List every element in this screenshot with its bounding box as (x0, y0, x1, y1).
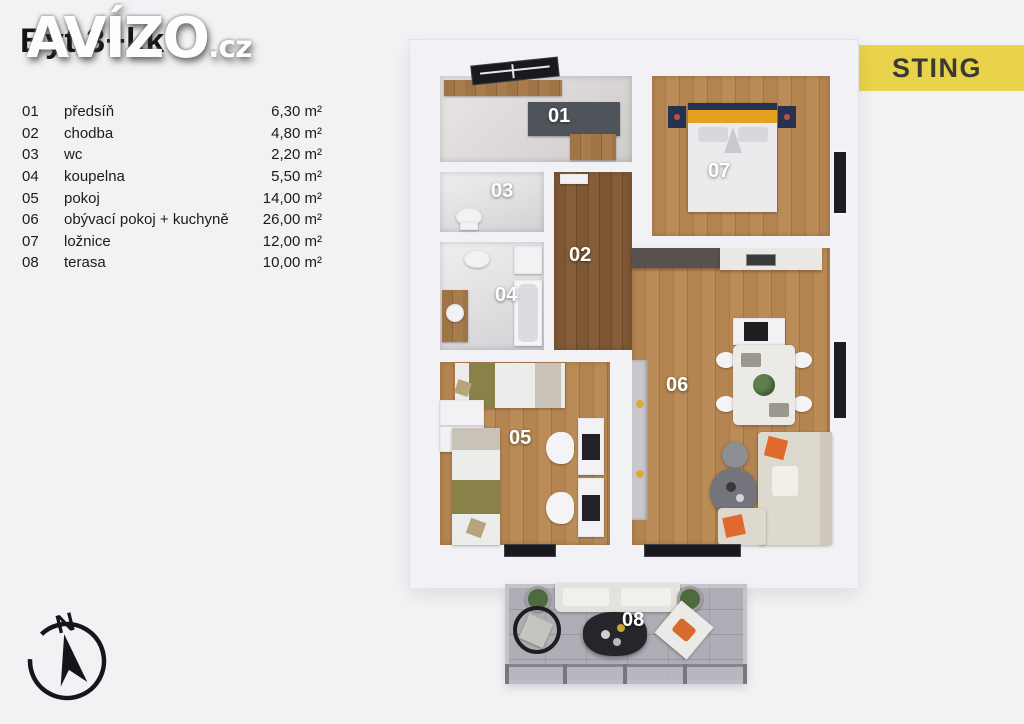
legend-room-name: předsíň (64, 103, 271, 120)
bathtub (514, 280, 542, 346)
sofa-pillow (764, 436, 788, 460)
plan-label-02: 02 (569, 244, 591, 267)
dining-table (733, 345, 795, 425)
plan-label-03: 03 (491, 180, 513, 203)
dining-chair (792, 352, 812, 368)
legend-room-number: 03 (22, 146, 64, 163)
legend-room-name: chodba (64, 125, 271, 142)
tall-cabinet (632, 360, 648, 520)
terrace-railing (505, 664, 747, 684)
sofa (758, 432, 832, 545)
toilet (464, 250, 490, 268)
legend-row: 06 obývací pokoj + kuchyně 26,00 m² (22, 209, 322, 231)
legend-room-number: 07 (22, 233, 64, 250)
watermark-main: AVÍZO (26, 6, 208, 71)
legend-room-number: 04 (22, 168, 64, 185)
legend-room-area: 12,00 m² (263, 233, 322, 250)
plan-label-07: 07 (708, 160, 730, 183)
legend-room-area: 10,00 m² (263, 254, 322, 271)
terrace-sliding-door (645, 545, 740, 556)
plan-label-08: 08 (622, 609, 644, 632)
legend-room-number: 05 (22, 190, 64, 207)
legend-room-number: 01 (22, 103, 64, 120)
kitchen-sink (746, 254, 776, 266)
desk-chair (546, 432, 574, 464)
legend-room-name: wc (64, 146, 271, 163)
legend-row: 08 terasa 10,00 m² (22, 252, 322, 274)
wardrobe (528, 102, 620, 136)
nightstand (778, 106, 796, 128)
interior-door (560, 174, 588, 184)
plan-label-04: 04 (495, 284, 517, 307)
kitchen-island (733, 318, 785, 345)
cooktop (744, 322, 768, 341)
window (832, 340, 848, 420)
washing-machine (514, 246, 542, 274)
monitor (582, 495, 600, 521)
outdoor-chair (513, 606, 561, 654)
dining-chair (792, 396, 812, 412)
plan-label-05: 05 (509, 427, 531, 450)
bed-pillow (466, 518, 487, 539)
double-bed (688, 103, 777, 212)
legend-room-area: 14,00 m² (263, 190, 322, 207)
watermark: AVÍZO.cz (26, 6, 252, 71)
legend-room-name: ložnice (64, 233, 263, 250)
kitchen-cabinets (632, 248, 720, 268)
legend-room-area: 4,80 m² (271, 125, 322, 142)
desk (578, 418, 604, 475)
terrace-08: 08 (505, 584, 747, 684)
desk-chair (546, 492, 574, 524)
legend-row: 04 koupelna 5,50 m² (22, 166, 322, 188)
nightstand (668, 106, 686, 128)
legend-room-name: terasa (64, 254, 263, 271)
compass-north-icon: N (22, 606, 112, 709)
monitor (582, 434, 600, 460)
legend-room-number: 02 (22, 125, 64, 142)
watermark-suffix: .cz (208, 30, 252, 65)
legend-room-name: pokoj (64, 190, 263, 207)
legend-room-area: 5,50 m² (271, 168, 322, 185)
table-plant (753, 374, 775, 396)
room-corridor-02 (554, 172, 632, 350)
legend-room-area: 6,30 m² (271, 103, 322, 120)
legend-room-number: 08 (22, 254, 64, 271)
compass-north-label: N (52, 606, 77, 640)
sofa-chaise (718, 508, 766, 545)
coffee-table-small (722, 442, 748, 468)
window (832, 150, 848, 215)
floor-plan: 01 02 03 04 05 06 07 (410, 40, 858, 588)
room-hallway-01 (440, 76, 632, 162)
terrace-door (505, 545, 555, 556)
legend-room-number: 06 (22, 211, 64, 228)
legend-room-name: obývací pokoj + kuchyně (64, 211, 263, 228)
wardrobe (444, 80, 562, 96)
kitchen-counter (720, 248, 822, 270)
plan-label-06: 06 (666, 374, 688, 397)
legend-row: 01 předsíň 6,30 m² (22, 101, 322, 123)
toilet-tank (460, 222, 478, 230)
legend-row: 05 pokoj 14,00 m² (22, 187, 322, 209)
legend-row: 07 ložnice 12,00 m² (22, 231, 322, 253)
legend-row: 03 wc 2,20 m² (22, 144, 322, 166)
cabinet (570, 134, 616, 160)
sink (446, 304, 464, 322)
brand-logo-sting: STING (850, 45, 1024, 91)
room-bathroom-04 (440, 242, 544, 350)
legend-room-area: 2,20 m² (271, 146, 322, 163)
plan-label-01: 01 (548, 105, 570, 128)
outdoor-sofa (555, 584, 680, 612)
legend-room-area: 26,00 m² (263, 211, 322, 228)
desk (578, 478, 604, 537)
sofa-pillow (722, 514, 746, 538)
bed-bottom (452, 428, 500, 545)
legend-room-name: koupelna (64, 168, 271, 185)
chair-cushion (671, 617, 697, 642)
legend-row: 02 chodba 4,80 m² (22, 123, 322, 145)
room-legend: 01 předsíň 6,30 m² 02 chodba 4,80 m² 03 … (22, 101, 322, 274)
